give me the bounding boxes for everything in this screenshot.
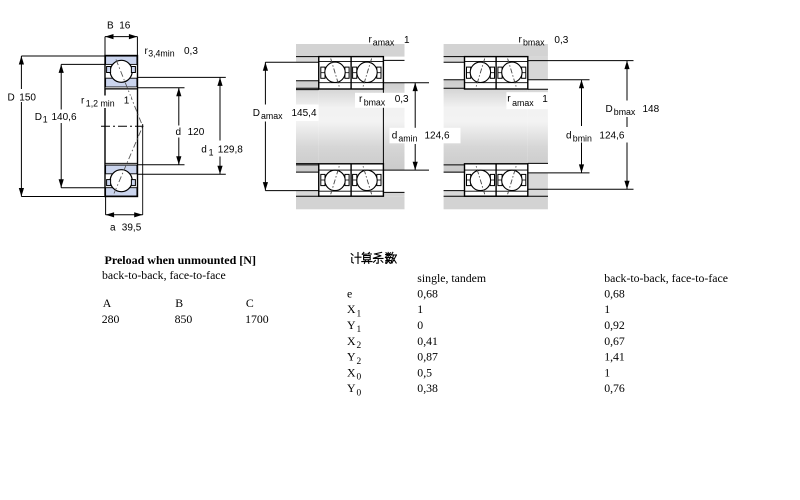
svg-text:B: B <box>107 21 114 32</box>
svg-text:d: d <box>201 145 207 156</box>
svg-text:d: d <box>566 131 572 142</box>
svg-text:D: D <box>606 104 613 115</box>
svg-text:D: D <box>35 112 42 123</box>
svg-text:0,87: 0,87 <box>417 350 438 364</box>
svg-text:850: 850 <box>175 312 193 326</box>
svg-text:A: A <box>103 296 112 310</box>
svg-text:1: 1 <box>604 302 610 316</box>
svg-text:2: 2 <box>357 357 362 367</box>
svg-text:1,2 min: 1,2 min <box>86 98 115 108</box>
svg-text:Y: Y <box>347 318 356 332</box>
svg-text:0,38: 0,38 <box>417 381 438 395</box>
svg-text:d: d <box>392 130 398 141</box>
svg-text:0,68: 0,68 <box>417 286 438 300</box>
svg-text:0,67: 0,67 <box>604 334 625 348</box>
svg-text:single, tandem: single, tandem <box>417 271 486 285</box>
svg-text:0,41: 0,41 <box>417 334 438 348</box>
svg-text:0,3: 0,3 <box>395 94 409 105</box>
svg-text:X: X <box>347 302 356 316</box>
svg-text:0,92: 0,92 <box>604 318 625 332</box>
svg-text:0,3: 0,3 <box>184 46 198 57</box>
svg-text:1: 1 <box>357 309 362 319</box>
svg-text:bmax: bmax <box>364 98 386 108</box>
svg-text:140,6: 140,6 <box>52 112 77 123</box>
svg-text:0,76: 0,76 <box>604 381 625 395</box>
svg-text:120: 120 <box>188 127 205 138</box>
svg-text:1: 1 <box>124 95 130 106</box>
svg-text:Y: Y <box>347 350 356 364</box>
svg-text:39,5: 39,5 <box>122 222 142 233</box>
svg-text:150: 150 <box>19 93 36 104</box>
svg-text:145,4: 145,4 <box>292 108 317 119</box>
svg-text:0: 0 <box>357 373 362 383</box>
svg-text:Y: Y <box>347 381 356 395</box>
svg-text:0: 0 <box>357 388 362 398</box>
svg-text:D: D <box>253 108 260 119</box>
svg-text:3,4min: 3,4min <box>148 48 175 58</box>
svg-text:2: 2 <box>357 341 362 351</box>
svg-text:amax: amax <box>373 38 395 48</box>
svg-text:1: 1 <box>604 365 610 379</box>
svg-text:0,68: 0,68 <box>604 286 625 300</box>
svg-text:1: 1 <box>417 302 423 316</box>
svg-text:back-to-back, face-to-face: back-to-back, face-to-face <box>604 271 728 285</box>
svg-text:C: C <box>246 296 254 310</box>
svg-text:1,41: 1,41 <box>604 350 625 364</box>
svg-text:e: e <box>347 286 352 300</box>
svg-text:bmax: bmax <box>614 107 636 117</box>
svg-text:Preload when unmounted [N]: Preload when unmounted [N] <box>105 253 256 267</box>
svg-text:bmin: bmin <box>573 134 592 144</box>
svg-text:B: B <box>175 296 183 310</box>
svg-text:148: 148 <box>643 104 660 115</box>
svg-text:r: r <box>519 34 523 45</box>
svg-text:0,5: 0,5 <box>417 365 432 379</box>
svg-text:d: d <box>176 127 182 138</box>
svg-text:1: 1 <box>404 35 410 46</box>
svg-text:0,3: 0,3 <box>554 35 568 46</box>
svg-text:amax: amax <box>261 111 283 121</box>
svg-text:280: 280 <box>102 312 120 326</box>
svg-text:16: 16 <box>119 21 131 32</box>
svg-text:129,8: 129,8 <box>218 145 243 156</box>
svg-text:amax: amax <box>512 98 534 108</box>
svg-text:0: 0 <box>417 318 423 332</box>
svg-text:1: 1 <box>542 94 548 105</box>
svg-text:X: X <box>347 334 356 348</box>
svg-text:D: D <box>8 93 15 104</box>
svg-text:amin: amin <box>398 133 417 143</box>
svg-text:1: 1 <box>209 147 214 157</box>
svg-text:1: 1 <box>357 325 362 335</box>
svg-text:bmax: bmax <box>523 38 545 48</box>
svg-text:1: 1 <box>43 114 48 124</box>
svg-text:X: X <box>347 365 356 379</box>
svg-text:124,6: 124,6 <box>425 130 450 141</box>
svg-text:1700: 1700 <box>245 312 269 326</box>
svg-text:a: a <box>110 222 116 233</box>
svg-text:back-to-back, face-to-face: back-to-back, face-to-face <box>102 268 226 282</box>
svg-text:124,6: 124,6 <box>599 131 624 142</box>
